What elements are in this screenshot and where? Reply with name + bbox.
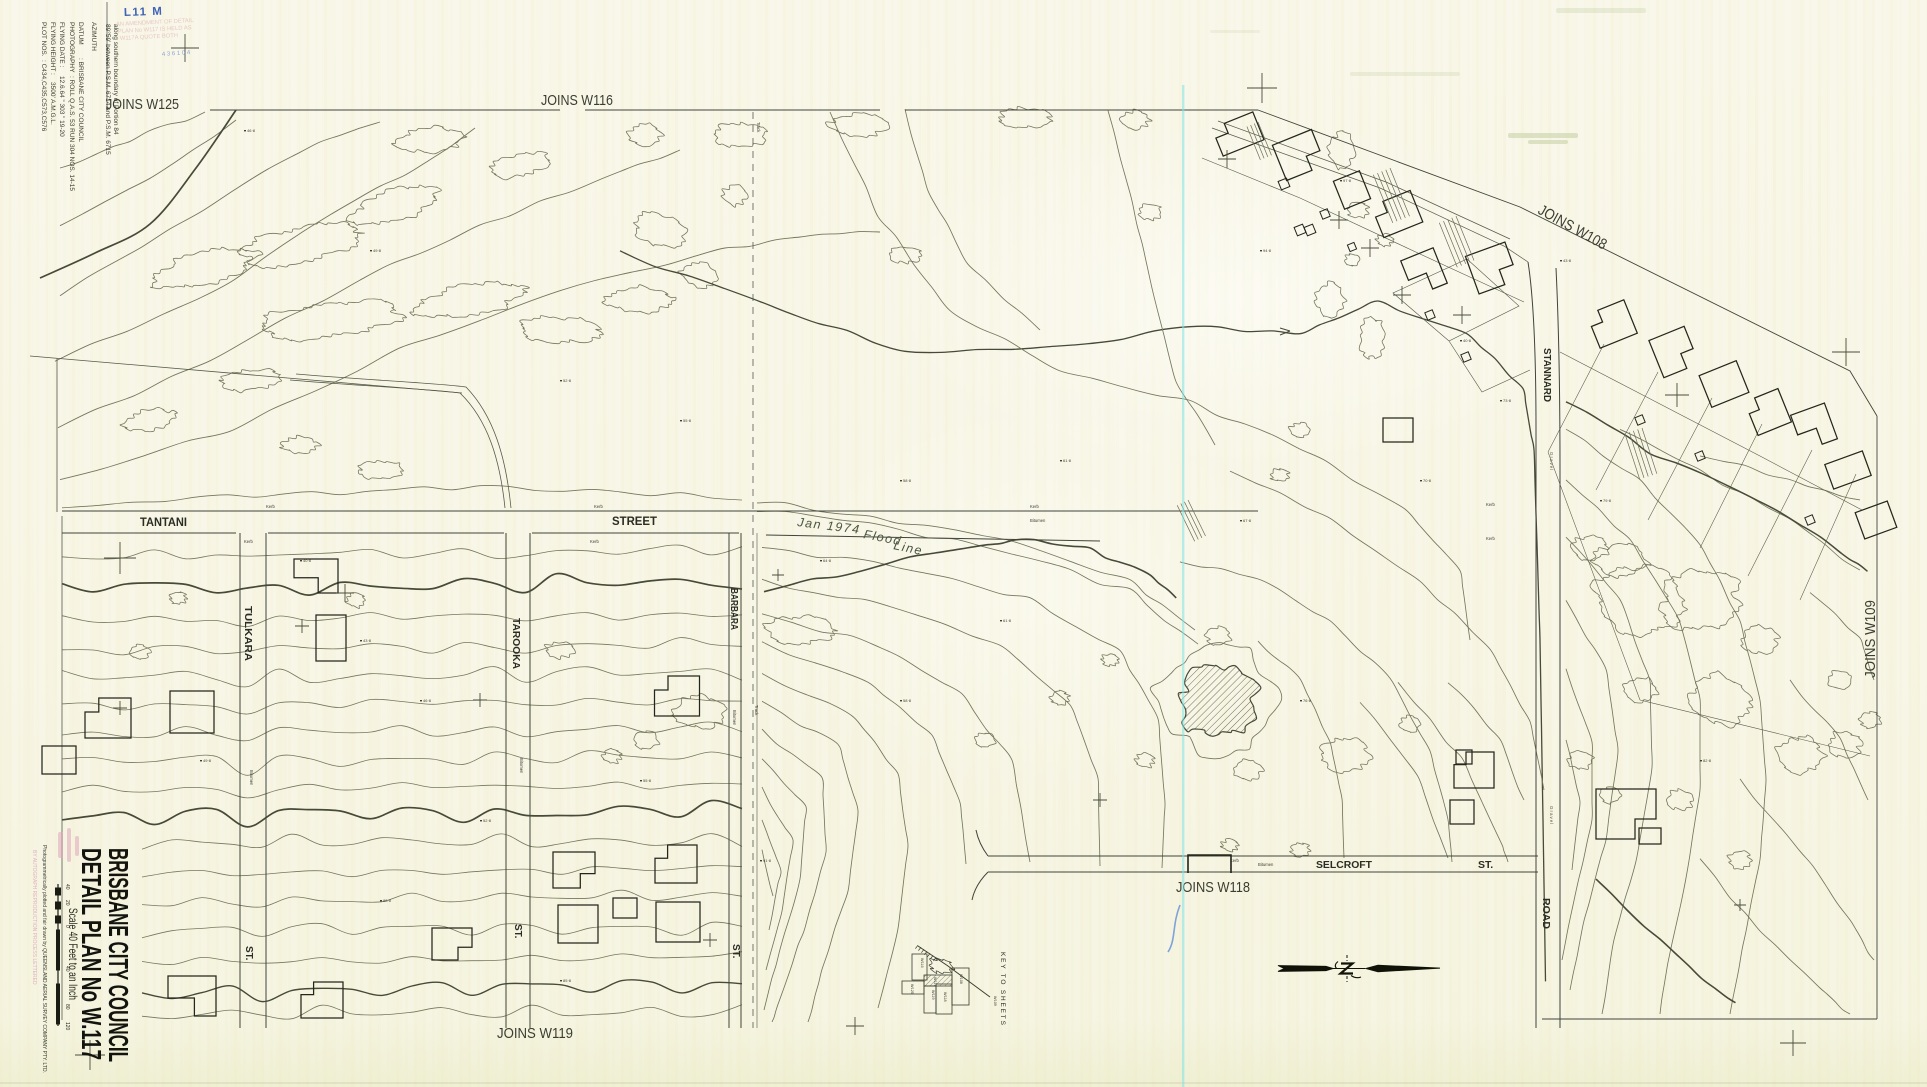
svg-text:Bitumen: Bitumen <box>1258 862 1274 867</box>
svg-text:Kerb: Kerb <box>594 504 604 509</box>
svg-text:Bitumen: Bitumen <box>1030 518 1046 523</box>
svg-text:TULKARA: TULKARA <box>242 606 254 661</box>
svg-text:along southern boundary of Por: along southern boundary of Portion 84 <box>112 24 119 135</box>
svg-text:BARBARA: BARBARA <box>728 588 740 630</box>
svg-text:Bitumen: Bitumen <box>249 770 254 786</box>
svg-text:58·8: 58·8 <box>903 698 912 703</box>
svg-text:KEY TO SHEETS: KEY TO SHEETS <box>999 952 1006 1027</box>
svg-text:AZIMUTH: AZIMUTH <box>90 22 97 51</box>
svg-text:46·8: 46·8 <box>423 698 432 703</box>
svg-text:40: 40 <box>64 884 70 890</box>
svg-text:55·8: 55·8 <box>683 418 692 423</box>
svg-text:BY AUTOGRAPH REPRODUCTION PRO: BY AUTOGRAPH REPRODUCTION PROCESS LETTER… <box>31 850 37 985</box>
svg-text:JOINS W108: JOINS W108 <box>1535 202 1610 254</box>
svg-text:52·8: 52·8 <box>563 378 572 383</box>
svg-text:JOINS W118: JOINS W118 <box>1176 879 1250 896</box>
svg-text:0: 0 <box>64 925 70 928</box>
svg-text:TANTANI: TANTANI <box>140 517 187 529</box>
svg-text:JOINS W116: JOINS W116 <box>541 92 613 109</box>
svg-text:TAROOKA: TAROOKA <box>510 618 522 669</box>
svg-text:DATUM: DATUM <box>77 22 84 45</box>
svg-text:Line: Line <box>892 538 924 558</box>
svg-text:STANNARD: STANNARD <box>1541 348 1553 402</box>
svg-text:73·8: 73·8 <box>1503 398 1512 403</box>
svg-text:55·8: 55·8 <box>643 778 652 783</box>
svg-text:Kerb: Kerb <box>1030 504 1040 509</box>
svg-text:Scale 40 Feet to an Inch: Scale 40 Feet to an Inch <box>66 908 80 1000</box>
svg-text:40·8: 40·8 <box>1463 338 1472 343</box>
svg-text:Kerb: Kerb <box>266 504 276 509</box>
svg-text:JOINS W109: JOINS W109 <box>1862 600 1879 678</box>
svg-text:W109: W109 <box>993 996 997 1006</box>
svg-text:W119: W119 <box>931 990 935 1000</box>
svg-text:40: 40 <box>64 966 70 972</box>
svg-text:FLYING HEIGHT :: FLYING HEIGHT : <box>49 22 56 75</box>
svg-text:Kerb: Kerb <box>590 539 600 544</box>
svg-text:94·8: 94·8 <box>1263 248 1272 253</box>
svg-text:Jan 1974: Jan 1974 <box>796 515 862 537</box>
svg-text:ST.: ST. <box>243 946 254 961</box>
svg-text:79·8: 79·8 <box>1603 498 1612 503</box>
svg-text:43·8: 43·8 <box>1563 258 1572 263</box>
svg-text:67·8: 67·8 <box>1243 518 1252 523</box>
svg-text:ST.: ST. <box>730 944 741 959</box>
svg-text:Kerb: Kerb <box>244 539 254 544</box>
svg-text:ROAD: ROAD <box>1540 898 1552 929</box>
svg-text:120: 120 <box>64 1022 70 1031</box>
svg-text:80: 80 <box>64 1004 70 1010</box>
svg-text:49·8: 49·8 <box>203 758 212 763</box>
svg-text:20: 20 <box>64 900 70 906</box>
svg-text:89°59’ between P.S.M. 6714 and: 89°59’ between P.S.M. 6714 and P.S.M. 67… <box>104 24 112 155</box>
svg-text:3500’ A.M.G.L.: 3500’ A.M.G.L. <box>49 82 56 125</box>
svg-text:PLOT NOS.: PLOT NOS. <box>40 22 47 57</box>
svg-text:Kerb: Kerb <box>1486 536 1496 541</box>
svg-text:W116: W116 <box>920 958 924 968</box>
svg-text:88·8: 88·8 <box>383 898 392 903</box>
svg-text:W118: W118 <box>943 992 947 1002</box>
svg-text:91·8: 91·8 <box>763 858 772 863</box>
svg-text:46·8: 46·8 <box>247 128 256 133</box>
svg-text:43·8: 43·8 <box>363 638 372 643</box>
svg-text:W117: W117 <box>933 977 937 987</box>
svg-text:: ROLL Q.A.S. 53 RUN 304 NOS.: : ROLL Q.A.S. 53 RUN 304 NOS. 14-15 <box>68 76 75 191</box>
svg-text:FLYING DATE :: FLYING DATE : <box>58 22 65 67</box>
svg-text:Track: Track <box>754 705 759 716</box>
svg-text:82·8: 82·8 <box>1703 758 1712 763</box>
svg-text:76·8: 76·8 <box>1303 698 1312 703</box>
svg-text:Photogrammetrically plotted an: Photogrammetrically plotted and fair dra… <box>41 845 47 1073</box>
svg-text:ST.: ST. <box>512 924 523 939</box>
svg-text:JOINS W119: JOINS W119 <box>497 1025 573 1042</box>
svg-text:61·8: 61·8 <box>1003 618 1012 623</box>
svg-text:12.6.64 ” 303 ” 19-20: 12.6.64 ” 303 ” 19-20 <box>58 76 65 137</box>
svg-text:97·8: 97·8 <box>1343 178 1352 183</box>
svg-text:W125: W125 <box>910 984 914 994</box>
svg-text:58·8: 58·8 <box>903 478 912 483</box>
svg-text:61·8: 61·8 <box>1063 458 1072 463</box>
svg-text:W108: W108 <box>959 974 963 984</box>
svg-text:64·8: 64·8 <box>823 558 832 563</box>
svg-text:ST.: ST. <box>1478 859 1493 871</box>
svg-text:52·8: 52·8 <box>483 818 492 823</box>
svg-text:Kerb: Kerb <box>1230 858 1240 863</box>
svg-text:SELCROFT: SELCROFT <box>1316 859 1373 871</box>
svg-text:70·8: 70·8 <box>1423 478 1432 483</box>
svg-text:Kerb: Kerb <box>1486 502 1496 507</box>
svg-text:: BRISBANE CITY COUNCIL: : BRISBANE CITY COUNCIL <box>77 58 84 142</box>
svg-text:4 3 6 1 0 4: 4 3 6 1 0 4 <box>162 50 191 58</box>
svg-text:Bitumen: Bitumen <box>732 710 737 726</box>
svg-text:85·8: 85·8 <box>563 978 572 983</box>
svg-text:40·8: 40·8 <box>303 558 312 563</box>
svg-text:Gravel: Gravel <box>1549 806 1554 825</box>
svg-text:L11 M: L11 M <box>124 6 164 19</box>
svg-text:STREET: STREET <box>612 516 657 528</box>
svg-text:PHOTOGRAPHY: PHOTOGRAPHY <box>68 22 75 73</box>
svg-text:Bitumen: Bitumen <box>519 758 524 774</box>
svg-text:Track: Track <box>756 122 761 133</box>
svg-text:: C434,C435,C573,C576: : C434,C435,C573,C576 <box>40 60 47 132</box>
svg-text:49·8: 49·8 <box>373 248 382 253</box>
